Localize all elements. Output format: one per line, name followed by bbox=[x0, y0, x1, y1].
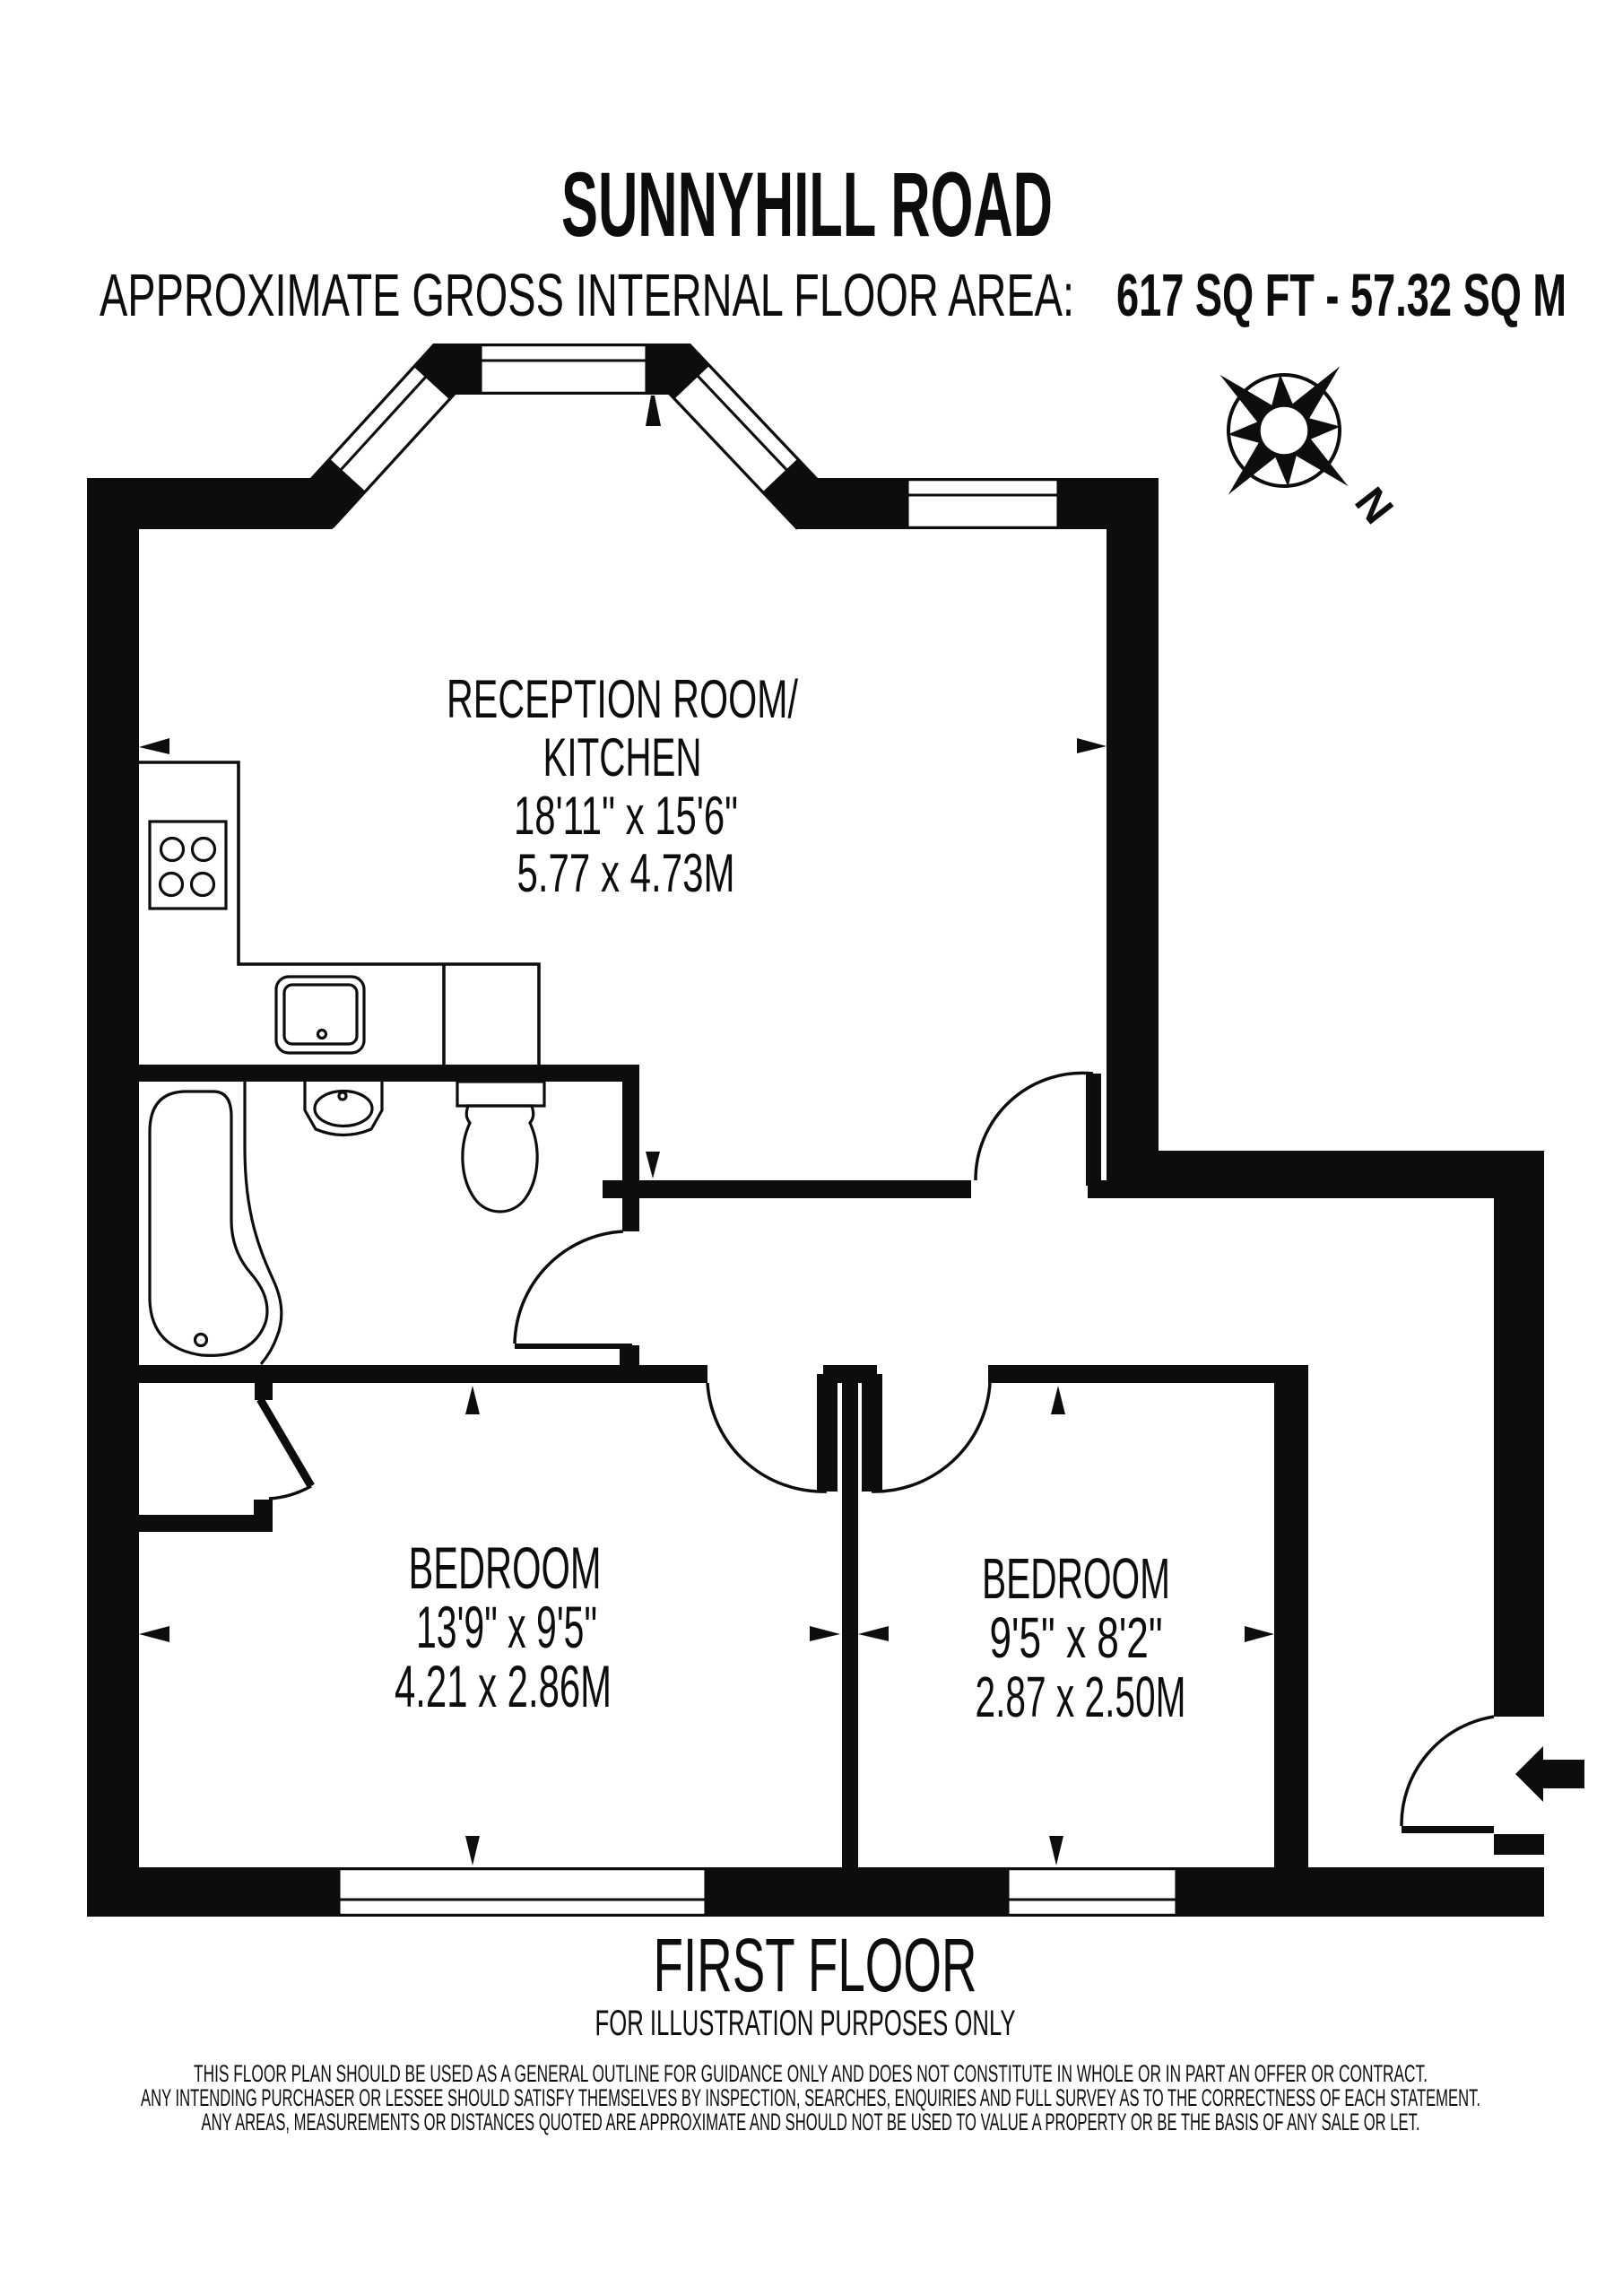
svg-text:9'5" x 8'2": 9'5" x 8'2" bbox=[990, 1605, 1163, 1670]
svg-text:13'9" x 9'5": 13'9" x 9'5" bbox=[416, 1594, 597, 1660]
svg-text:THIS FLOOR PLAN SHOULD BE USED: THIS FLOOR PLAN SHOULD BE USED AS A GENE… bbox=[194, 2060, 1428, 2087]
svg-text:ANY AREAS, MEASUREMENTS OR DIS: ANY AREAS, MEASUREMENTS OR DISTANCES QUO… bbox=[202, 2109, 1420, 2135]
svg-text:BEDROOM: BEDROOM bbox=[982, 1546, 1170, 1611]
svg-text:FOR ILLUSTRATION PURPOSES ONLY: FOR ILLUSTRATION PURPOSES ONLY bbox=[595, 2004, 1016, 2043]
svg-text:APPROXIMATE GROSS INTERNAL FLO: APPROXIMATE GROSS INTERNAL FLOOR AREA: bbox=[100, 262, 1074, 329]
svg-text:FIRST FLOOR: FIRST FLOOR bbox=[654, 1923, 977, 2007]
svg-text:18'11" x 15'6": 18'11" x 15'6" bbox=[514, 786, 738, 846]
svg-text:4.21 x 2.86M: 4.21 x 2.86M bbox=[395, 1653, 612, 1719]
svg-text:BEDROOM: BEDROOM bbox=[409, 1535, 602, 1601]
svg-text:2.87 x 2.50M: 2.87 x 2.50M bbox=[976, 1665, 1186, 1729]
svg-text:ANY INTENDING PURCHASER OR LES: ANY INTENDING PURCHASER OR LESSEE SHOULD… bbox=[141, 2084, 1480, 2111]
svg-text:5.77 x 4.73M: 5.77 x 4.73M bbox=[517, 843, 735, 903]
svg-text:SUNNYHILL ROAD: SUNNYHILL ROAD bbox=[561, 153, 1053, 256]
svg-text:KITCHEN: KITCHEN bbox=[543, 727, 702, 787]
svg-text:RECEPTION ROOM/: RECEPTION ROOM/ bbox=[447, 669, 798, 729]
svg-text:617 SQ FT - 57.32 SQ M: 617 SQ FT - 57.32 SQ M bbox=[1116, 262, 1567, 329]
